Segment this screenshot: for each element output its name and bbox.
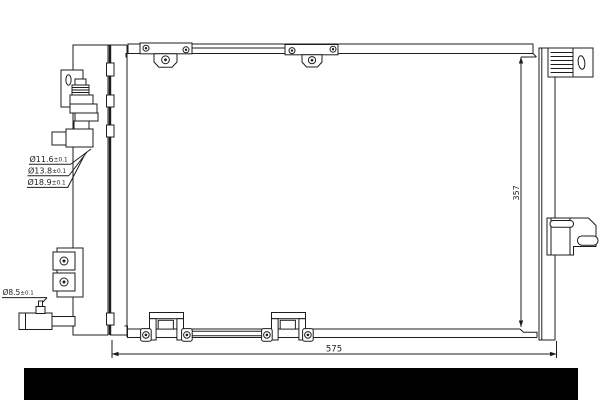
core-clip [107,95,115,107]
service-valve-cap [36,307,45,314]
lower-left-bracket [53,248,83,297]
port-diameter-labels: Ø11.6±0.1 Ø13.8±0.1 Ø18.9±0.1 [27,154,71,187]
width-dimension-label: 575 [326,345,342,355]
watermark-redaction-bar [24,368,578,400]
upper-right-bracket [548,48,593,77]
oval-hole [66,75,71,85]
core-clip [107,313,115,325]
slot-hole [578,236,599,245]
core-clip [107,63,115,76]
technical-drawing-canvas: Ø11.6±0.1 Ø13.8±0.1 Ø18.9±0.1 Ø8.5±0.1 [0,0,600,400]
height-dimension-label: 357 [512,185,521,200]
core-clip [107,125,115,137]
condenser-diagram: Ø11.6±0.1 Ø13.8±0.1 Ø18.9±0.1 Ø8.5±0.1 [0,0,600,400]
